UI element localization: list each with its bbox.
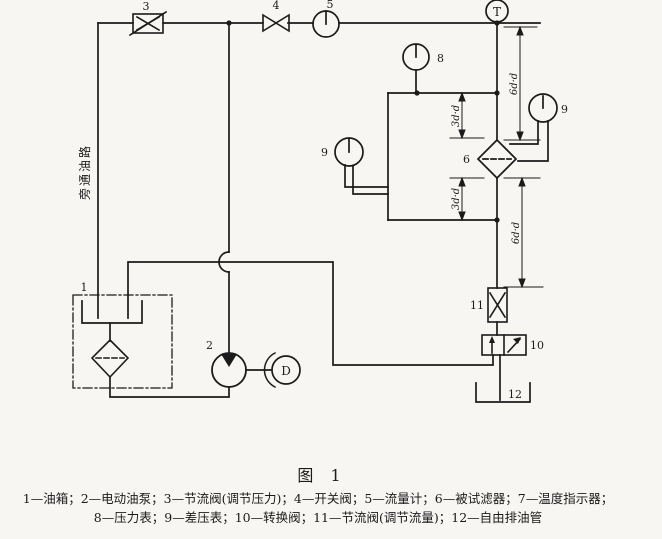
pump-flow-triangle	[221, 354, 237, 367]
switching-valve	[482, 335, 526, 355]
label-diff-gauge-right: 9	[561, 103, 568, 116]
label-drain-tank: 12	[508, 388, 522, 401]
label-throttle-flow: 11	[470, 299, 484, 312]
tank-symbol	[82, 301, 142, 323]
tank-boundary-chain-line	[73, 295, 172, 388]
dimension-downstream-far: 6d·d	[511, 222, 522, 244]
oil-pump	[212, 353, 271, 387]
test-filter	[478, 140, 516, 178]
throttle-valve-flow	[488, 288, 507, 322]
temperature-indicator-letter: T	[493, 5, 501, 19]
dimension-upstream-far: 6d·d	[509, 73, 520, 95]
label-switching-valve: 10	[530, 339, 544, 352]
label-tank: 1	[81, 281, 88, 294]
scanned-standard-page: 3 4 5 T 8 9 9 6	[0, 0, 662, 539]
motor-letter: D	[281, 364, 291, 378]
dimension-downstream-near: 3d·d	[451, 188, 462, 210]
label-test-filter: 6	[463, 153, 470, 166]
label-flow-meter: 5	[327, 0, 334, 11]
figure-legend-line-1: 1—油箱；2—电动油泵；3—节流阀(调节压力)；4—开关阀；5—流量计；6—被试…	[23, 491, 613, 506]
piping-lines	[98, 23, 540, 400]
bypass-line-label: 旁通油路	[77, 144, 92, 200]
label-switch-valve: 4	[273, 0, 280, 12]
oil-tank-unit	[73, 295, 172, 388]
label-throttle-pressure: 3	[143, 0, 150, 13]
diff-pressure-gauge-right	[510, 94, 557, 161]
flow-meter-gauge	[313, 11, 339, 37]
label-diff-gauge-left: 9	[321, 146, 328, 159]
throttle-valve-pressure	[130, 12, 166, 35]
label-pressure-gauge: 8	[437, 52, 444, 65]
dimension-upstream-near: 3d·d	[451, 105, 462, 127]
diff-pressure-gauge-left	[335, 138, 388, 194]
pressure-gauge	[403, 44, 429, 70]
switch-valve	[263, 15, 289, 31]
temperature-indicator: T	[486, 0, 508, 22]
hydraulic-test-circuit-figure: 3 4 5 T 8 9 9 6	[0, 0, 662, 539]
label-pump: 2	[206, 339, 213, 352]
figure-caption-title: 图 1	[297, 466, 346, 485]
figure-legend-line-2: 8—压力表；9—差压表；10—转换阀；11—节流阀(调节流量)；12—自由排油管	[94, 510, 542, 525]
